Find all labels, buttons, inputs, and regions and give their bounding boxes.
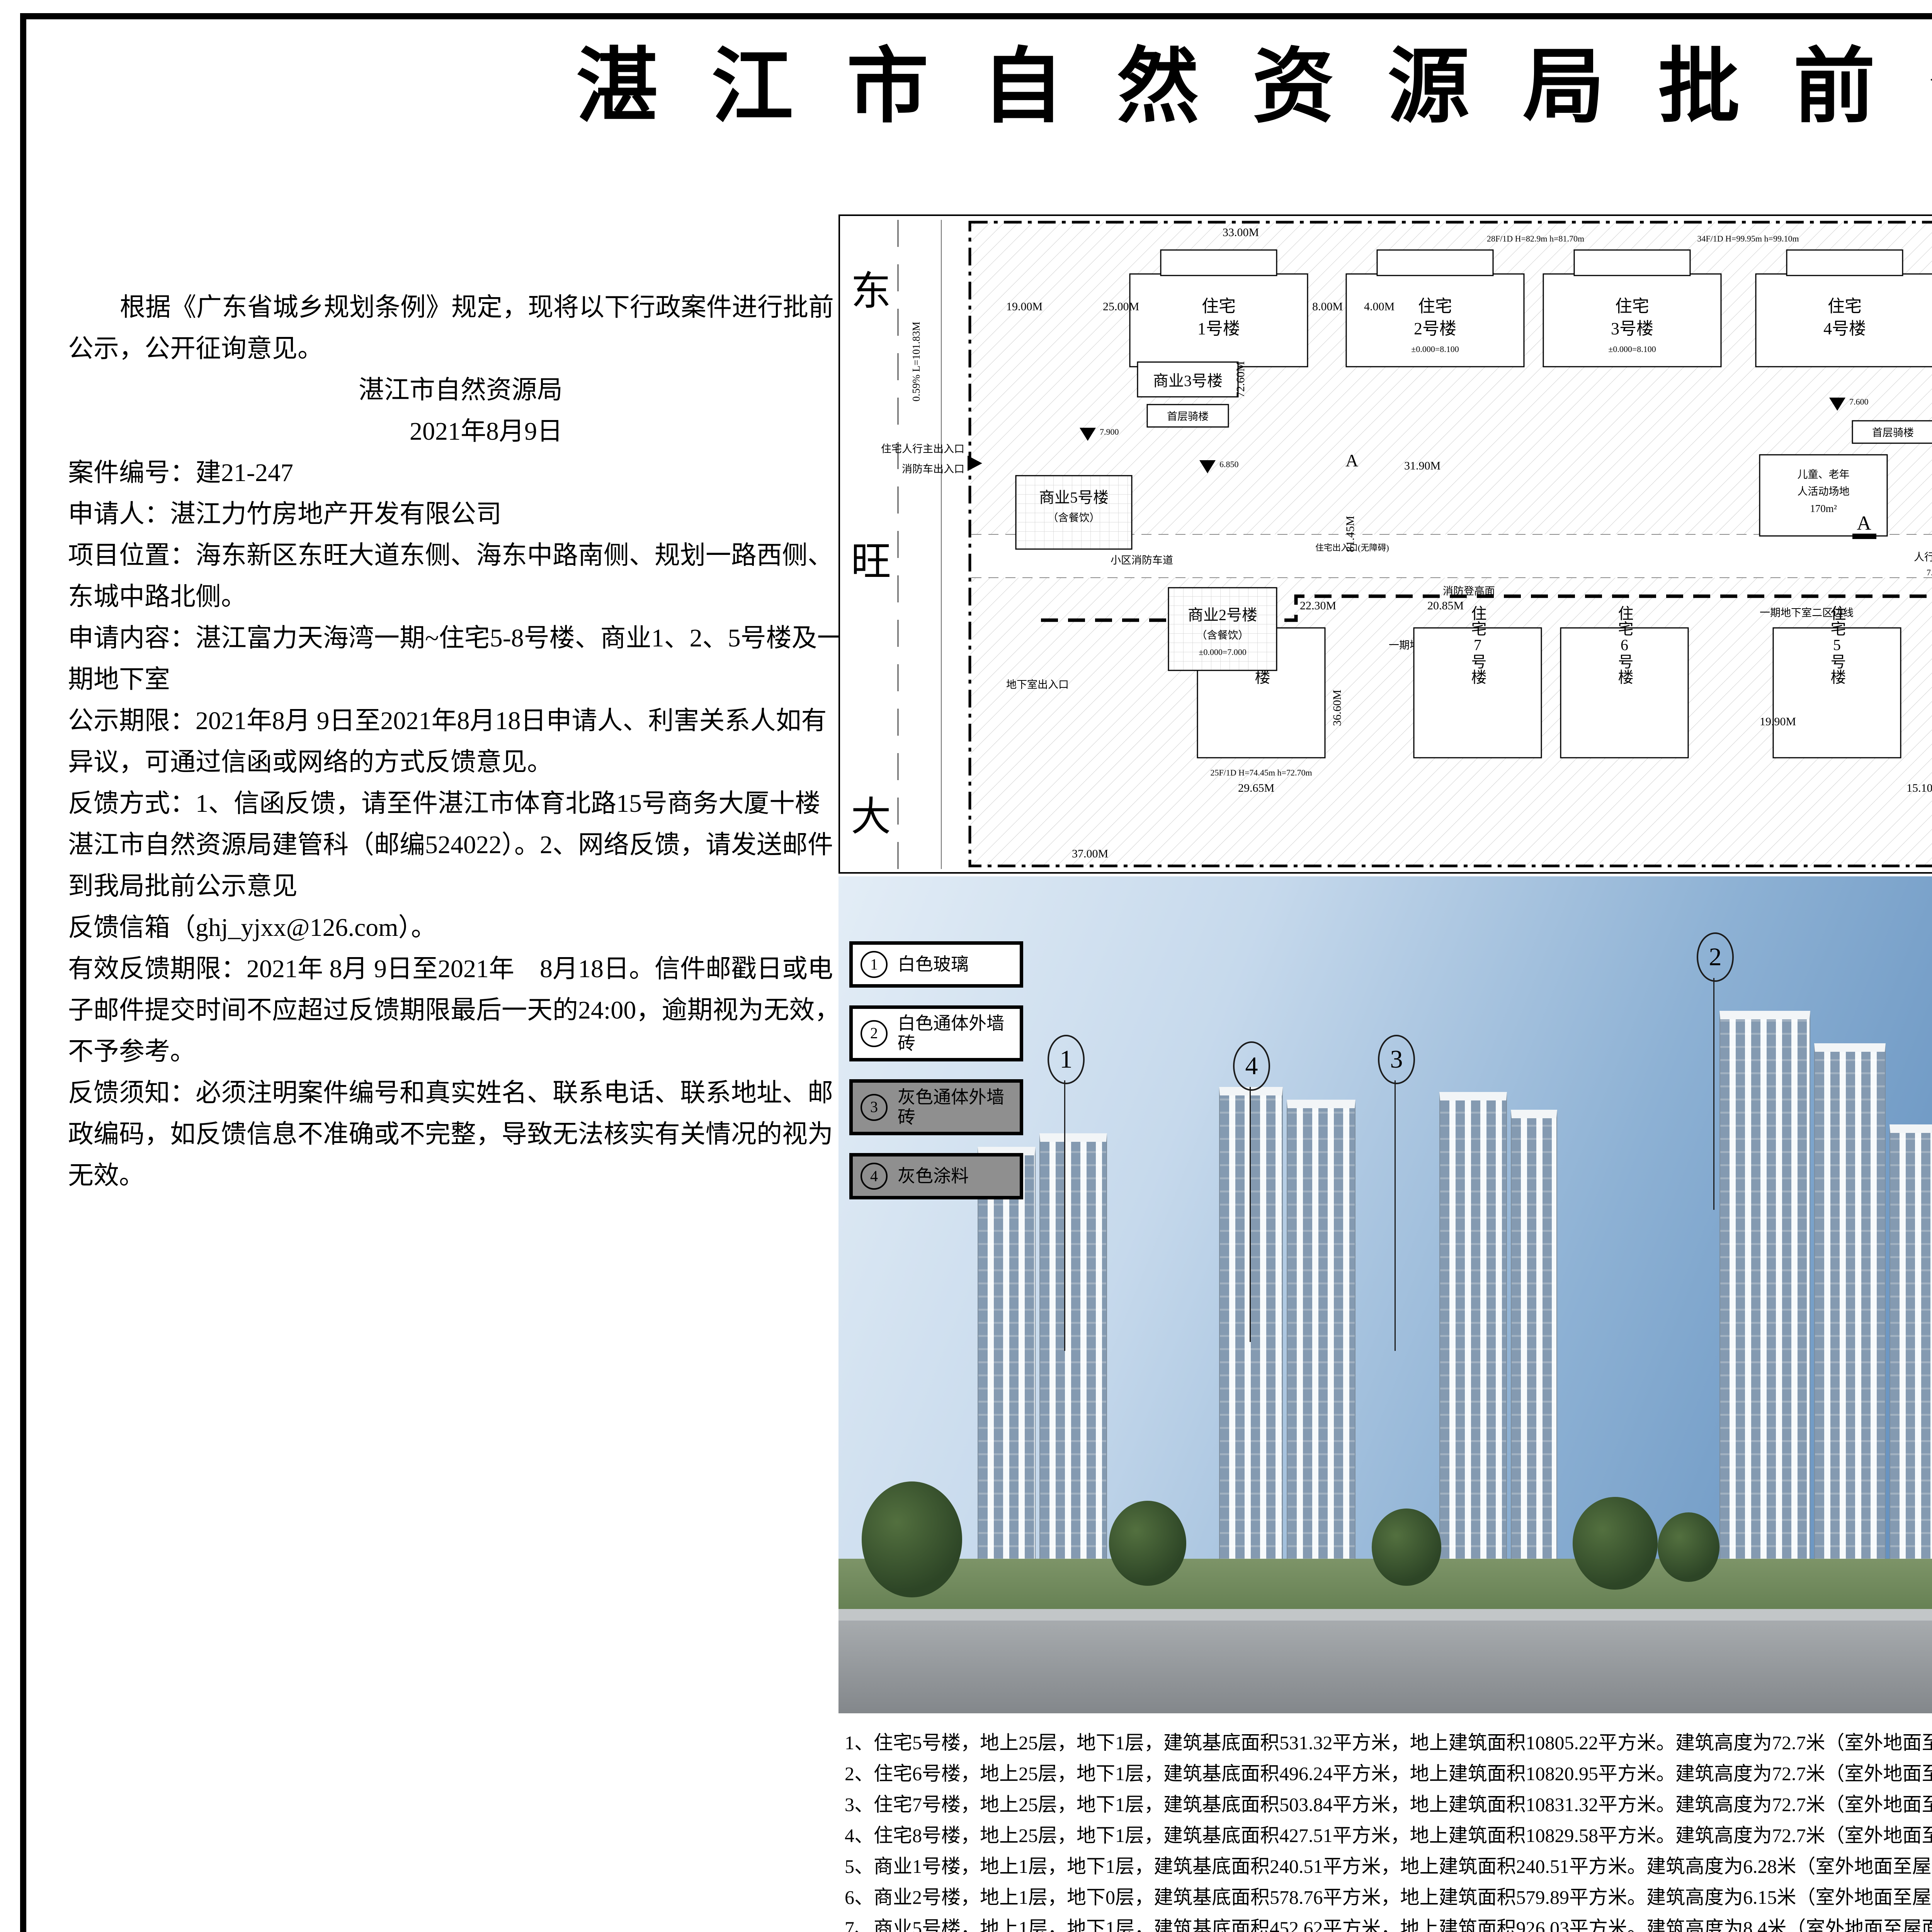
site-plan-panel: 东 旺 大 0.59% L=101.83M 划 0.13% L=84.58M 住… <box>838 214 1932 874</box>
feedback-method: 反馈方式：1、信函反馈，请至件湛江市体育北路15号商务大厦十楼湛江市自然资源局建… <box>68 783 845 907</box>
case-number: 案件编号：建21-247 <box>68 452 845 493</box>
commercial-2: 商业2号楼 （含餐饮） ±0.000=7.000 <box>1168 588 1277 670</box>
project-location: 项目位置：海东新区东旺大道东侧、海东中路南侧、规划一路西侧、东城中路北侧。 <box>68 535 845 617</box>
label-r4a: 住宅 <box>1828 297 1862 316</box>
tree <box>1658 1512 1719 1582</box>
lvl4-label: 7.550 <box>1927 568 1932 577</box>
rendered-tower-3a <box>1439 1092 1507 1587</box>
feedback-notice: 反馈须知：必须注明案件编号和真实姓名、联系电话、联系地址、邮政编码，如反馈信息不… <box>68 1072 845 1196</box>
section-marker-a: A <box>1857 512 1871 534</box>
tree <box>1109 1501 1186 1586</box>
legend-label: 灰色通体外墙砖 <box>898 1087 1012 1127</box>
tree <box>1573 1497 1658 1590</box>
label-b5: 住宅5号楼 <box>1828 605 1846 685</box>
label-spec2: 28F/1D H=82.9m h=81.70m <box>1487 234 1584 243</box>
page-title: 湛江市自然资源局批前公示 <box>0 20 1932 139</box>
label-biz2b: （含餐饮） <box>1197 629 1249 641</box>
rendered-tower-4a <box>1219 1087 1283 1587</box>
label-spec3: 25F/1D H=74.45m h=72.70m <box>1210 768 1312 777</box>
feedback-email: 反馈信箱（ghj_yjxx@126.com）。 <box>68 907 845 948</box>
note-line-1: 1、住宅5号楼，地上25层，地下1层，建筑基底面积531.32平方米，地上建筑面… <box>845 1727 1932 1758</box>
legend-label: 灰色涂料 <box>898 1166 1012 1186</box>
dim-14: 36.60M <box>1331 690 1344 726</box>
notice-date: 2021年8月9日 <box>68 411 845 452</box>
callout-2-number: 2 <box>1709 942 1722 972</box>
label-r4b: 4号楼 <box>1823 319 1866 338</box>
callout-1-number: 1 <box>1060 1045 1073 1074</box>
publicity-period: 公示期限：2021年8月 9日至2021年8月18日申请人、利害关系人如有异议，… <box>68 700 845 783</box>
callout-1: 1 <box>1048 1035 1085 1084</box>
label-r1b: 1号楼 <box>1197 319 1240 338</box>
west-road: 东 旺 大 0.59% L=101.83M <box>851 220 941 869</box>
dim-13: 81.45M <box>1344 516 1357 552</box>
label-entry1: 住宅人行主出入口 <box>881 443 964 455</box>
label-kid2: 人活动场地 <box>1798 486 1850 497</box>
label-qilou2: 首层骑楼 <box>1872 427 1914 439</box>
site-plan-drawing: 东 旺 大 0.59% L=101.83M 划 0.13% L=84.58M 住… <box>840 216 1932 872</box>
tree <box>862 1481 962 1597</box>
label-biz2a: 商业2号楼 <box>1188 606 1257 624</box>
label-biz5a: 商业5号楼 <box>1039 489 1109 506</box>
callout-leader-2 <box>1713 978 1714 1210</box>
legend-number-icon: 1 <box>861 951 888 978</box>
activity-area: 儿童、老年 人活动场地 170m² A <box>1760 455 1887 539</box>
legend-number-icon: 3 <box>861 1094 888 1121</box>
notice-agency: 湛江市自然资源局 <box>68 369 845 411</box>
label-biz5b: （含餐饮） <box>1048 512 1100 524</box>
commercial-5: 商业5号楼 （含餐饮） <box>1016 476 1132 549</box>
label-biz2-level: ±0.000=7.000 <box>1199 647 1246 657</box>
label-fire-road: 小区消防车道 <box>1111 554 1173 566</box>
note-line-7: 7、商业5号楼，地上1层，地下1层，建筑基底面积452.62平方米，地上建筑面积… <box>845 1913 1932 1932</box>
label-biz3: 商业3号楼 <box>1153 372 1223 389</box>
dim-12: 15.10M <box>1906 782 1932 794</box>
label-kid1: 儿童、老年 <box>1798 469 1850 480</box>
valid-feedback-period: 有效反馈期限：2021年 8月 9日至2021年 8月18日。信件邮戳日或电子邮… <box>68 948 845 1072</box>
notice-poster: { "title": "湛江市自然资源局批前公示", "left": { "pa… <box>0 0 1932 1932</box>
label-spec1: 34F/1D H=99.95m h=99.10m <box>1697 234 1799 243</box>
lvl3-label: 7.600 <box>1849 397 1869 406</box>
material-legend: 1白色玻璃2白色通体外墙砖3灰色通体外墙砖4灰色涂料 <box>849 941 1023 1217</box>
dim-3: 8.00M <box>1312 300 1343 313</box>
label-entry3: 地下室出入口 <box>1006 679 1069 690</box>
label-r2a: 住宅 <box>1418 297 1452 316</box>
callout-2: 2 <box>1697 932 1734 982</box>
section-marker-a2: A <box>1345 451 1358 470</box>
dim-6: 31.90M <box>1404 459 1440 472</box>
legend-item: 4灰色涂料 <box>849 1153 1023 1199</box>
road-slope-label: 0.59% L=101.83M <box>910 322 922 401</box>
road-char-da: 大 <box>851 795 891 839</box>
callout-3: 3 <box>1378 1035 1415 1084</box>
road-band <box>838 1621 1932 1713</box>
label-r3-level: ±0.000=8.100 <box>1608 344 1656 354</box>
rendered-tower-1b <box>1039 1133 1107 1587</box>
label-entry2: 消防车出入口 <box>902 463 964 475</box>
building-notes: 1、住宅5号楼，地上25层，地下1层，建筑基底面积531.32平方米，地上建筑面… <box>845 1727 1932 1932</box>
dim-4: 4.00M <box>1364 300 1395 313</box>
dim-5: 72.60M <box>1234 361 1247 398</box>
rendered-tower-4b <box>1287 1100 1355 1587</box>
label-b6: 住宅6号楼 <box>1616 605 1633 685</box>
dim-7: 22.30M <box>1300 599 1336 612</box>
callout-3-number: 3 <box>1390 1045 1403 1074</box>
rendered-tower-3b <box>1511 1110 1557 1587</box>
legend-label: 白色通体外墙砖 <box>898 1014 1012 1053</box>
label-r3b: 3号楼 <box>1611 319 1653 338</box>
legend-number-icon: 2 <box>861 1020 888 1047</box>
label-b7: 住宅7号楼 <box>1469 605 1486 685</box>
legend-item: 2白色通体外墙砖 <box>849 1005 1023 1061</box>
legend-label: 白色玻璃 <box>898 954 1012 975</box>
label-r1a: 住宅 <box>1202 297 1236 316</box>
dim-9: 37.00M <box>1072 847 1108 860</box>
dim-8: 20.85M <box>1427 599 1464 612</box>
notice-text-column: 根据《广东省城乡规划条例》规定，现将以下行政案件进行批前公示，公开征询意见。 湛… <box>68 287 845 1196</box>
road-char-wang: 旺 <box>851 540 891 584</box>
lvl1-label: 7.900 <box>1100 427 1119 437</box>
tree <box>1372 1509 1441 1586</box>
note-line-4: 4、住宅8号楼，地上25层，地下1层，建筑基底面积427.51平方米，地上建筑面… <box>845 1820 1932 1851</box>
applicant: 申请人：湛江力竹房地产开发有限公司 <box>68 493 845 535</box>
callout-leader-4 <box>1250 1087 1251 1342</box>
rendered-tower-2b <box>1814 1043 1886 1587</box>
callout-4-number: 4 <box>1245 1051 1258 1081</box>
label-kid3: 170m² <box>1810 503 1837 514</box>
label-r2-level: ±0.000=8.100 <box>1411 344 1459 354</box>
dim-0: 33.00M <box>1223 226 1259 239</box>
legend-item: 3灰色通体外墙砖 <box>849 1079 1023 1135</box>
rendered-tower-2a <box>1719 1011 1810 1587</box>
architectural-rendering: 1白色玻璃2白色通体外墙砖3灰色通体外墙砖4灰色涂料 1 4 3 2 <box>838 876 1932 1713</box>
dim-15: 19.90M <box>1760 715 1796 728</box>
label-r3a: 住宅 <box>1615 297 1649 316</box>
note-line-3: 3、住宅7号楼，地上25层，地下1层，建筑基底面积503.84平方米，地上建筑面… <box>845 1789 1932 1820</box>
notice-paragraph-basis: 根据《广东省城乡规划条例》规定，现将以下行政案件进行批前公示，公开征询意见。 <box>68 287 845 369</box>
callout-leader-1 <box>1064 1080 1065 1351</box>
note-line-5: 5、商业1号楼，地上1层，地下1层，建筑基底面积240.51平方米，地上建筑面积… <box>845 1851 1932 1882</box>
rendered-tower-2c <box>1889 1124 1932 1587</box>
callout-leader-3 <box>1395 1080 1396 1351</box>
label-r2b: 2号楼 <box>1414 319 1456 338</box>
dim-11: 29.65M <box>1238 782 1274 794</box>
dim-1: 19.00M <box>1006 300 1043 313</box>
legend-number-icon: 4 <box>861 1163 888 1190</box>
label-qilou1: 首层骑楼 <box>1167 411 1209 422</box>
legend-item: 1白色玻璃 <box>849 941 1023 988</box>
note-line-6: 6、商业2号楼，地上1层，地下0层，建筑基底面积578.76平方米，地上建筑面积… <box>845 1882 1932 1913</box>
callout-4: 4 <box>1233 1041 1270 1091</box>
dim-2: 25.00M <box>1103 300 1139 313</box>
label-entry4: 人行次出入口 <box>1914 551 1932 563</box>
road-char-dong: 东 <box>851 269 891 314</box>
application-content: 申请内容：湛江富力天海湾一期~住宅5-8号楼、商业1、2、5号楼及一期地下室 <box>68 617 845 700</box>
note-line-2: 2、住宅6号楼，地上25层，地下1层，建筑基底面积496.24平方米，地上建筑面… <box>845 1758 1932 1789</box>
lvl2-label: 6.850 <box>1219 459 1239 469</box>
